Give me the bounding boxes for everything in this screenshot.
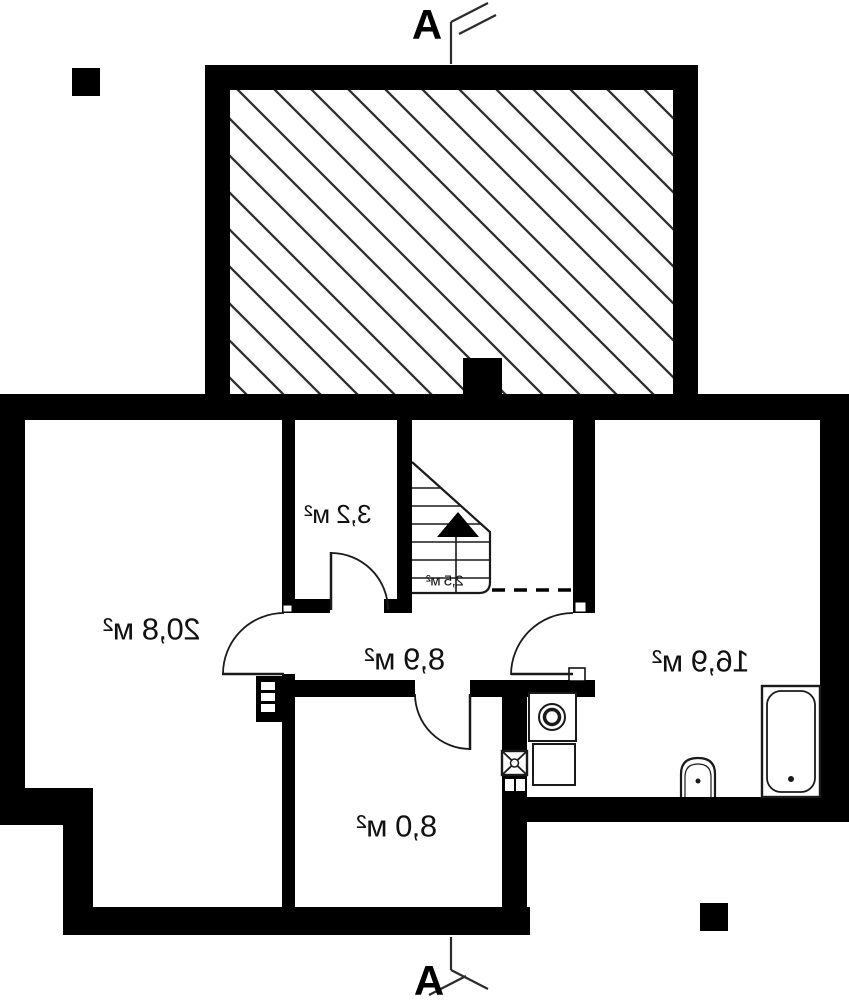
wall-closet-bottom-left <box>293 599 330 613</box>
registration-mark-top-left <box>72 68 100 96</box>
bathtub <box>762 686 820 797</box>
room-label-20-8: 20,8 м² <box>103 614 200 645</box>
bathtub-drain <box>788 776 794 782</box>
wall-left <box>0 394 25 825</box>
wall-terrace-top <box>205 65 698 90</box>
wall-hall-bathroom <box>573 420 595 613</box>
cabinet <box>533 744 575 785</box>
room-label-16-9: 16,9 м² <box>652 646 749 677</box>
wall-terrace-left <box>205 65 230 394</box>
chimney <box>463 358 502 396</box>
fixtures <box>502 686 820 797</box>
wall-livingroom-upper <box>282 420 295 613</box>
floor-plan: A A 20,8 м² 3,2 м² 2,5 м² 8,9 м² 16,9 м²… <box>0 0 849 1000</box>
wall-closet-stairs <box>397 420 412 613</box>
door-closet <box>331 552 388 610</box>
door-living-room <box>222 613 284 674</box>
wall-terrace-right <box>673 65 698 394</box>
wall-top <box>0 394 849 420</box>
floor-plan-canvas <box>0 0 849 1000</box>
gas-box <box>502 751 527 775</box>
section-mark-top <box>451 3 496 64</box>
wall-hall-bottom-left <box>282 680 415 697</box>
door-bathroom <box>511 613 573 675</box>
toilet <box>681 758 715 797</box>
wall-bottom <box>63 907 530 935</box>
washing-machine <box>529 693 576 741</box>
registration-mark-bottom-right <box>700 903 728 931</box>
terrace-hatch <box>230 90 673 394</box>
room-label-3-2: 3,2 м² <box>305 501 372 527</box>
room-label-8-9: 8,9 м² <box>365 644 445 675</box>
room-label-8-0: 8,0 м² <box>357 811 437 842</box>
wall-room8-right <box>502 695 527 935</box>
wall-right <box>820 394 849 822</box>
section-letter-bottom: A <box>414 960 444 1000</box>
room-label-2-5: 2,5 м² <box>426 574 463 589</box>
door-room8 <box>415 694 470 750</box>
section-letter-top: A <box>412 4 442 46</box>
wall-bath-bottom <box>502 797 849 822</box>
